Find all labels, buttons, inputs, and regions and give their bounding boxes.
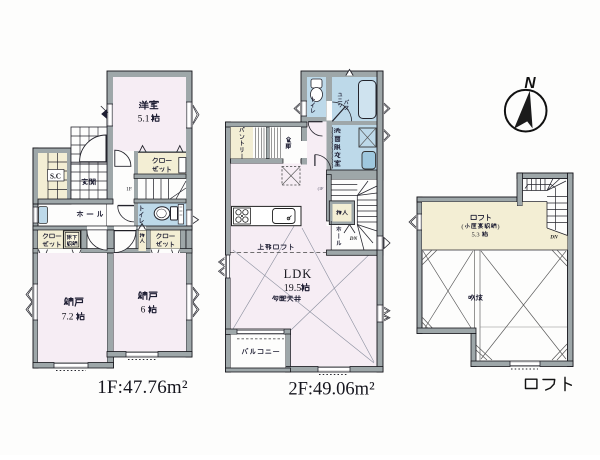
svg-text:7.2: 7.2 (62, 313, 74, 323)
svg-text:5.3: 5.3 (471, 232, 479, 239)
svg-text:(: ( (461, 224, 463, 231)
svg-text:): ) (497, 224, 499, 231)
svg-text:1F: 1F (126, 187, 132, 193)
svg-text:5.1: 5.1 (138, 115, 150, 125)
svg-text:DN: DN (549, 235, 558, 241)
svg-text:LDK: LDK (284, 267, 313, 281)
svg-text:N: N (524, 75, 536, 92)
svg-text:6: 6 (141, 306, 146, 316)
svg-text:DN: DN (349, 236, 358, 242)
svg-text:S.C: S.C (50, 172, 61, 180)
svg-text:2F:49.06m²: 2F:49.06m² (288, 380, 375, 400)
svg-text:19.5: 19.5 (284, 283, 302, 294)
svg-text:(1F: (1F (318, 186, 324, 191)
svg-text:1F:47.76m²: 1F:47.76m² (97, 377, 188, 398)
